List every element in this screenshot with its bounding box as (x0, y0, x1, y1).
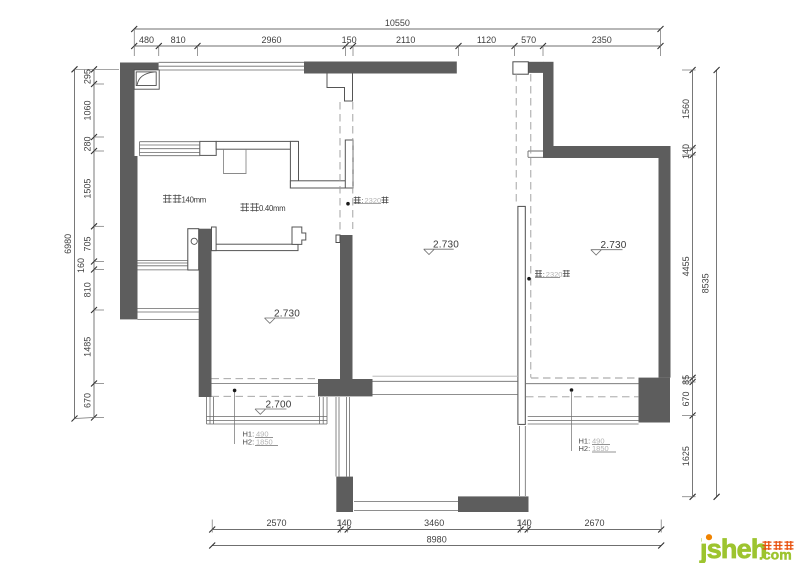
svg-text:670: 670 (681, 391, 691, 406)
svg-text:1060: 1060 (83, 100, 93, 120)
svg-text:150: 150 (342, 35, 357, 45)
svg-text:1485: 1485 (83, 337, 93, 357)
svg-text:2.730: 2.730 (274, 309, 300, 320)
svg-text:705: 705 (83, 236, 93, 251)
svg-text:2670: 2670 (584, 518, 604, 528)
svg-text:280: 280 (83, 136, 93, 151)
svg-text:2570: 2570 (266, 518, 286, 528)
svg-text:295: 295 (83, 69, 93, 84)
svg-text::: : (362, 196, 364, 205)
svg-text:2350: 2350 (592, 35, 612, 45)
svg-text:1560: 1560 (681, 99, 691, 119)
svg-text:85: 85 (681, 375, 691, 385)
svg-text:1625: 1625 (681, 446, 691, 466)
svg-text:2.730: 2.730 (601, 240, 627, 251)
svg-text:160: 160 (76, 258, 86, 273)
svg-text:810: 810 (83, 282, 93, 297)
svg-text:6980: 6980 (63, 234, 73, 254)
svg-text:1850: 1850 (256, 438, 273, 447)
svg-text:1505: 1505 (83, 179, 93, 199)
svg-text:2.700: 2.700 (266, 400, 292, 411)
svg-text:0.40mm: 0.40mm (259, 204, 285, 213)
svg-text:2.730: 2.730 (433, 240, 459, 251)
svg-text:570: 570 (521, 35, 536, 45)
svg-text:2110: 2110 (396, 35, 415, 45)
svg-text:140mm: 140mm (182, 196, 207, 205)
svg-text:3460: 3460 (424, 518, 444, 528)
svg-text:1850: 1850 (592, 444, 609, 453)
svg-text:2320: 2320 (365, 196, 382, 205)
svg-text:8980: 8980 (427, 535, 447, 545)
svg-text:H2:: H2: (579, 444, 591, 453)
svg-text:140: 140 (517, 518, 532, 528)
svg-text:140: 140 (337, 518, 352, 528)
svg-text:480: 480 (139, 35, 154, 45)
svg-text:810: 810 (171, 35, 186, 45)
svg-text::: : (543, 270, 545, 279)
svg-text:H2:: H2: (243, 438, 255, 447)
svg-text:2960: 2960 (261, 35, 281, 45)
svg-text:10550: 10550 (385, 18, 410, 28)
svg-text:140: 140 (681, 144, 691, 159)
svg-text:2320: 2320 (546, 270, 563, 279)
svg-text:670: 670 (83, 393, 93, 408)
svg-text:4455: 4455 (681, 256, 691, 276)
svg-text:1120: 1120 (477, 35, 496, 45)
svg-text:8535: 8535 (701, 273, 711, 293)
